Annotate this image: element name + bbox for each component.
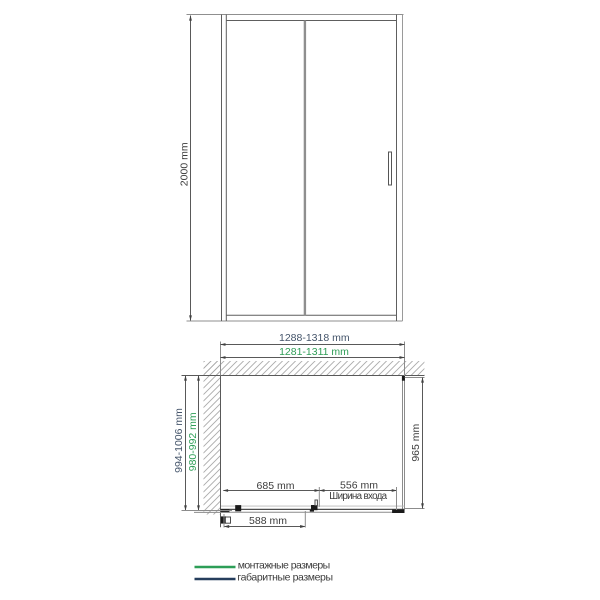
svg-text:994-1006 mm: 994-1006 mm — [173, 408, 185, 473]
svg-text:2000 mm: 2000 mm — [178, 142, 190, 186]
svg-text:685 mm: 685 mm — [257, 480, 295, 492]
svg-text:1281-1311 mm: 1281-1311 mm — [279, 346, 349, 358]
svg-text:монтажные размеры: монтажные размеры — [238, 560, 331, 572]
svg-text:1288-1318 mm: 1288-1318 mm — [279, 332, 350, 344]
svg-text:965 mm: 965 mm — [410, 423, 422, 461]
svg-text:588 mm: 588 mm — [249, 515, 287, 527]
svg-text:980-992 mm: 980-992 mm — [187, 412, 199, 471]
svg-text:556 mm: 556 mm — [340, 479, 378, 491]
svg-text:Ширина входа: Ширина входа — [329, 491, 387, 502]
svg-text:габаритные размеры: габаритные размеры — [237, 572, 333, 584]
